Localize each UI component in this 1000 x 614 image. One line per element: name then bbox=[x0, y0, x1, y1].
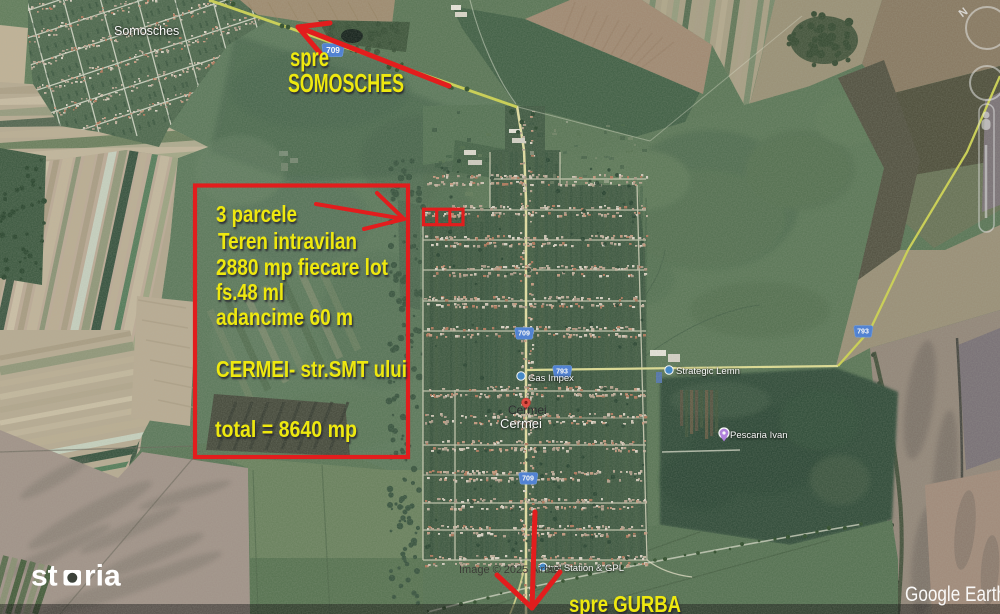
svg-text:ria: ria bbox=[84, 560, 121, 593]
svg-text:fs.48 ml: fs.48 ml bbox=[216, 279, 284, 305]
svg-text:2880 mp fiecare lot: 2880 mp fiecare lot bbox=[216, 254, 388, 280]
svg-text:SOMOSCHES: SOMOSCHES bbox=[288, 68, 404, 98]
svg-text:st: st bbox=[31, 560, 58, 593]
svg-text:Teren intravilan: Teren intravilan bbox=[218, 228, 357, 254]
svg-text:spre GURBA: spre GURBA bbox=[569, 591, 681, 614]
svg-text:total = 8640 mp: total = 8640 mp bbox=[215, 416, 357, 442]
svg-text:3 parcele: 3 parcele bbox=[216, 201, 297, 227]
svg-text:CERMEI- str.SMT ului: CERMEI- str.SMT ului bbox=[216, 356, 407, 382]
svg-text:adancime 60 m: adancime 60 m bbox=[216, 304, 353, 330]
svg-text:Google Earth: Google Earth bbox=[905, 583, 1000, 606]
